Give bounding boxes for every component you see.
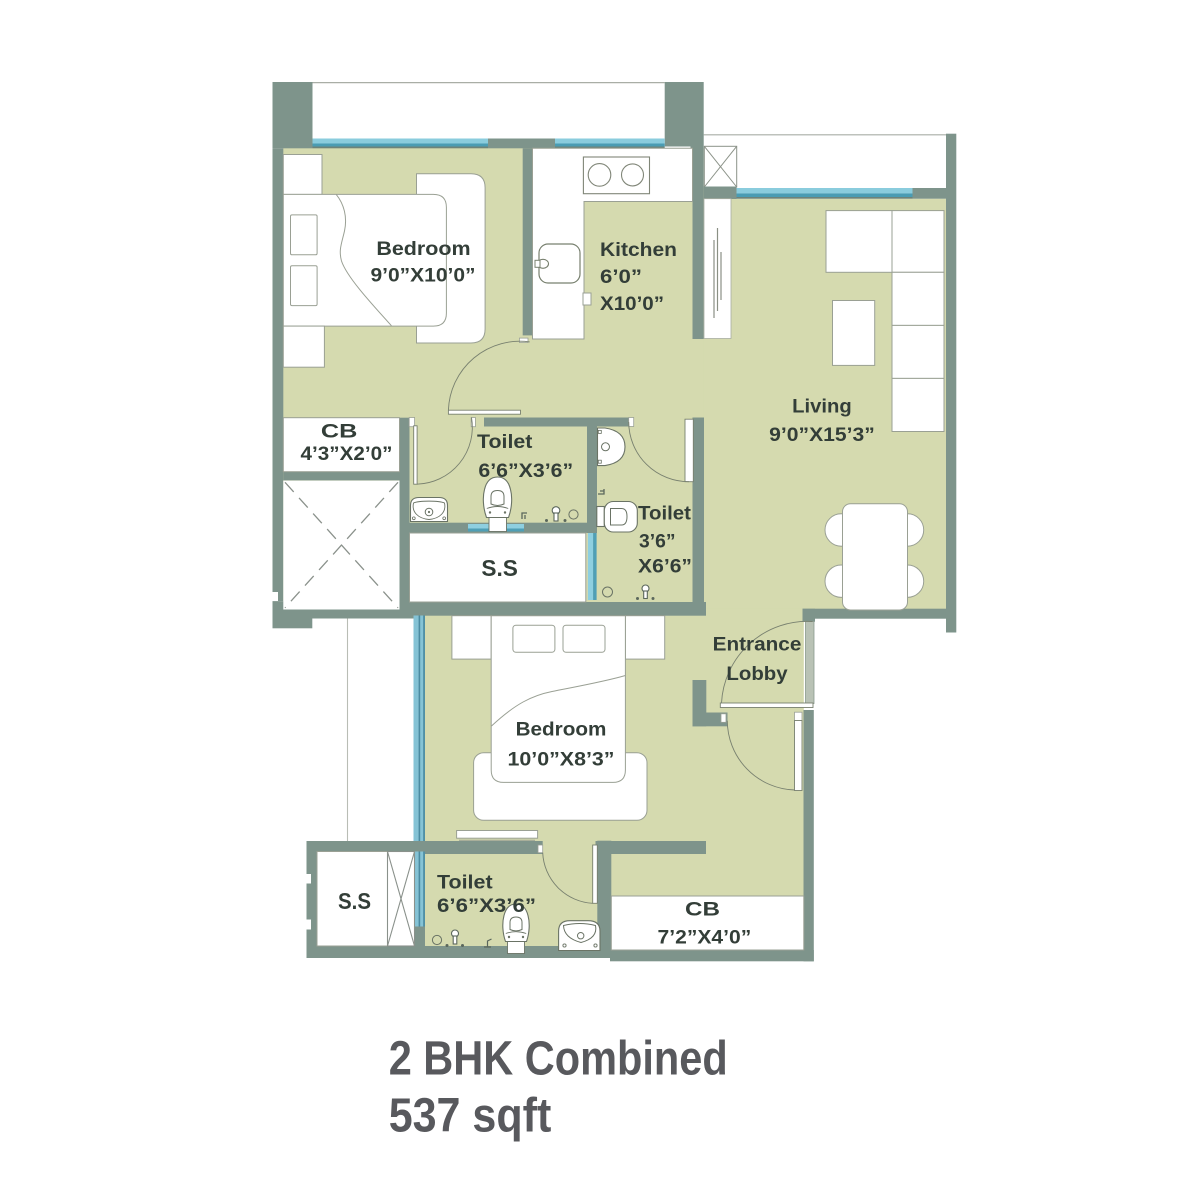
svg-text:Toilet: Toilet [437,872,493,894]
svg-text:Toilet: Toilet [477,431,533,453]
svg-text:CB: CB [321,421,358,443]
svg-text:7’2”X4’0”: 7’2”X4’0” [658,927,752,949]
svg-text:Kitchen: Kitchen [600,239,677,261]
svg-text:S.S: S.S [481,555,518,581]
svg-text:4’3”X2’0”: 4’3”X2’0” [301,443,393,465]
svg-text:3’6”: 3’6” [639,531,676,553]
svg-text:6’6”X3’6”: 6’6”X3’6” [437,895,536,917]
svg-text:Bedroom: Bedroom [376,238,470,260]
svg-text:10’0”X8’3”: 10’0”X8’3” [508,749,615,771]
svg-text:S.S: S.S [338,888,371,914]
svg-text:2 BHK Combined: 2 BHK Combined [389,1033,728,1086]
svg-text:9’0”X15’3”: 9’0”X15’3” [769,424,875,446]
svg-text:Toilet: Toilet [638,503,692,525]
svg-text:9’0”X10’0”: 9’0”X10’0” [371,264,476,286]
svg-text:Bedroom: Bedroom [516,719,607,741]
svg-text:CB: CB [685,899,720,921]
svg-text:Entrance: Entrance [713,634,802,656]
svg-text:X10’0”: X10’0” [600,293,664,315]
svg-text:Living: Living [792,396,852,418]
svg-text:X6’6”: X6’6” [638,556,692,578]
svg-text:Lobby: Lobby [726,663,787,685]
svg-text:6’0”: 6’0” [600,266,642,288]
svg-text:537 sqft: 537 sqft [389,1090,552,1143]
svg-text:6’6”X3’6”: 6’6”X3’6” [478,460,573,482]
